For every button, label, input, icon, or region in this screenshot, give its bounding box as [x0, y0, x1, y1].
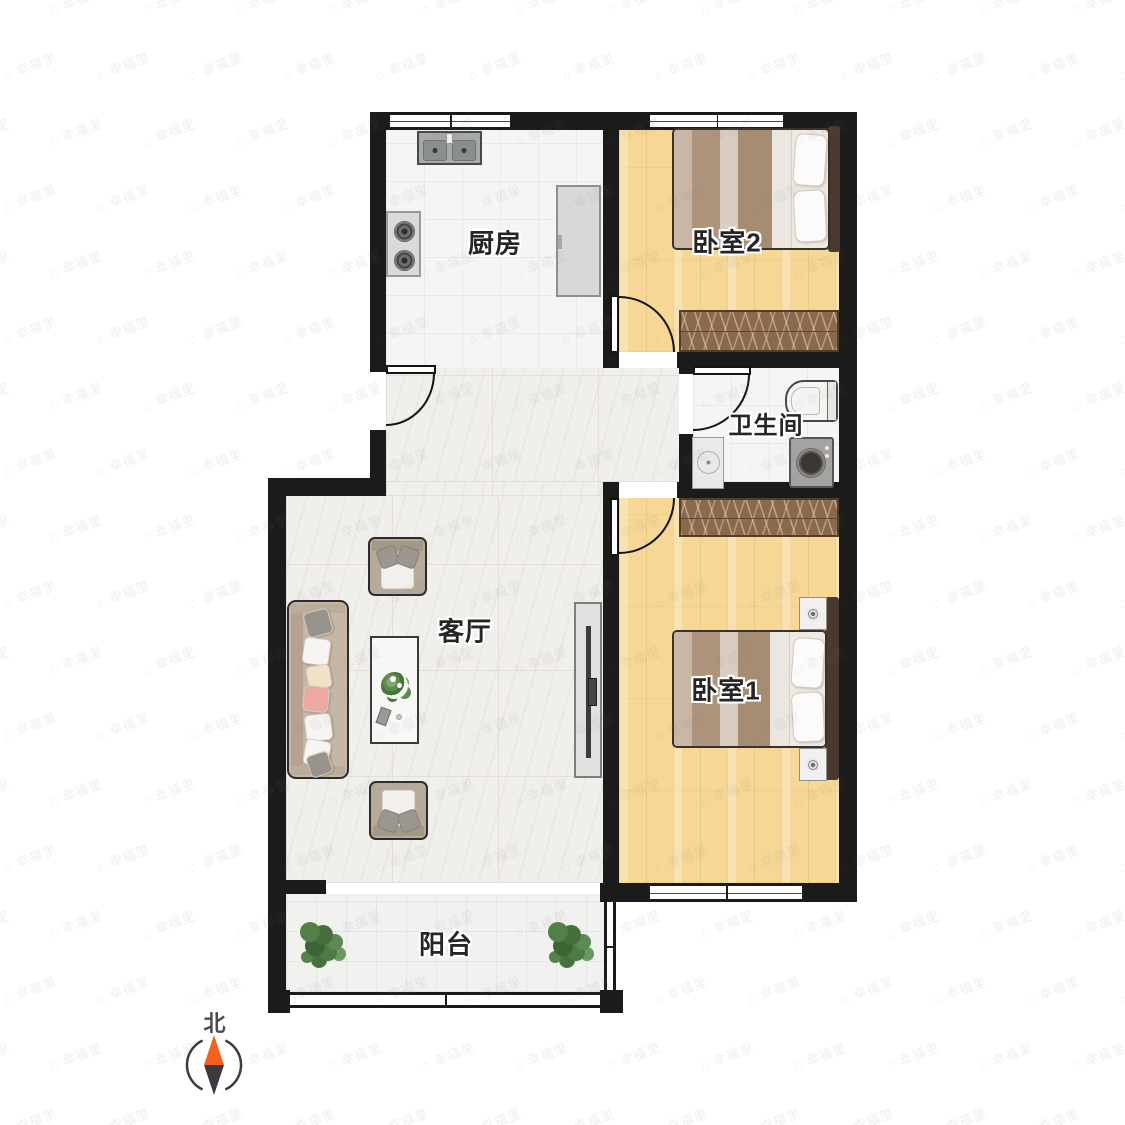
- flower-icon: [397, 683, 402, 688]
- entry-door-leaf: [386, 365, 436, 374]
- watermark-item: ⌂ 幸福里: [46, 0, 105, 18]
- watermark-item: ⌂ 幸福里: [883, 113, 942, 150]
- wall-segment: [603, 352, 619, 368]
- watermark-item: ⌂ 幸福里: [0, 1037, 12, 1074]
- watermark-item: ⌂ 幸福里: [930, 443, 989, 480]
- watermark-item: ⌂ 幸福里: [1023, 443, 1082, 480]
- watermark-item: ⌂ 幸福里: [697, 0, 756, 18]
- watermark-item: ⌂ 幸福里: [1069, 905, 1125, 942]
- watermark-item: ⌂ 幸福里: [1116, 179, 1125, 216]
- coffee-table: [370, 636, 419, 744]
- watermark-item: ⌂ 幸福里: [1023, 707, 1082, 744]
- wall-segment: [268, 496, 286, 1012]
- room-label-bedroom2: 卧室2: [692, 223, 761, 260]
- sofa-pillow: [301, 636, 331, 666]
- room-label-bedroom1: 卧室1: [691, 671, 760, 708]
- sink-basin: [452, 140, 476, 161]
- watermark-item: ⌂ 幸福里: [0, 707, 59, 744]
- compass-needle-north: [204, 1035, 224, 1065]
- watermark-item: ⌂ 幸福里: [930, 971, 989, 1008]
- watermark-item: ⌂ 幸福里: [976, 641, 1035, 678]
- watermark-item: ⌂ 幸福里: [1069, 113, 1125, 150]
- sink-basin: [423, 140, 447, 161]
- wall-segment: [839, 130, 857, 902]
- wall-segment: [510, 112, 650, 130]
- watermark-item: ⌂ 幸福里: [465, 47, 524, 84]
- watermark-item: ⌂ 幸福里: [976, 113, 1035, 150]
- wall-segment: [603, 482, 619, 498]
- watermark-item: ⌂ 幸福里: [325, 0, 384, 18]
- watermark-item: ⌂ 幸福里: [930, 1103, 989, 1125]
- watermark-item: ⌂ 幸福里: [930, 707, 989, 744]
- watermark-item: ⌂ 幸福里: [0, 1103, 59, 1125]
- room-label-balcony: 阳台: [419, 925, 473, 962]
- watermark-item: ⌂ 幸福里: [1116, 1103, 1125, 1125]
- watermark-item: ⌂ 幸福里: [744, 1103, 803, 1125]
- watermark-item: ⌂ 幸福里: [930, 839, 989, 876]
- watermark-item: ⌂ 幸福里: [465, 1103, 524, 1125]
- watermark-item: ⌂ 幸福里: [186, 971, 245, 1008]
- watermark-item: ⌂ 幸福里: [744, 971, 803, 1008]
- watermark-item: ⌂ 幸福里: [976, 377, 1035, 414]
- watermark-item: ⌂ 幸福里: [976, 773, 1035, 810]
- watermark-item: ⌂ 幸福里: [1069, 1037, 1125, 1074]
- faucet-icon: [446, 133, 453, 144]
- watermark-item: ⌂ 幸福里: [279, 179, 338, 216]
- watermark-item: ⌂ 幸福里: [139, 773, 198, 810]
- watermark-item: ⌂ 幸福里: [186, 47, 245, 84]
- watermark-item: ⌂ 幸福里: [418, 0, 477, 18]
- coaster: [396, 714, 402, 720]
- watermark-item: ⌂ 幸福里: [93, 1103, 152, 1125]
- watermark-item: ⌂ 幸福里: [0, 311, 59, 348]
- watermark-item: ⌂ 幸福里: [976, 905, 1035, 942]
- room-label-bathroom: 卫生间: [729, 406, 804, 441]
- tv-base: [588, 678, 597, 706]
- nightstand: [799, 597, 827, 630]
- watermark-item: ⌂ 幸福里: [697, 905, 756, 942]
- watermark-item: ⌂ 幸福里: [46, 245, 105, 282]
- watermark-item: ⌂ 幸福里: [1023, 1103, 1082, 1125]
- watermark-item: ⌂ 幸福里: [0, 245, 12, 282]
- watermark-item: ⌂ 幸福里: [558, 1103, 617, 1125]
- washer-button: [825, 446, 829, 450]
- wall-segment: [370, 430, 386, 478]
- watermark-item: ⌂ 幸福里: [0, 47, 59, 84]
- watermark-item: ⌂ 幸福里: [279, 1103, 338, 1125]
- watermark-item: ⌂ 幸福里: [139, 113, 198, 150]
- balcony-side-window: [604, 902, 616, 990]
- watermark-item: ⌂ 幸福里: [46, 509, 105, 546]
- watermark-item: ⌂ 幸福里: [139, 0, 198, 18]
- watermark-item: ⌂ 幸福里: [1116, 575, 1125, 612]
- watermark-item: ⌂ 幸福里: [232, 245, 291, 282]
- remote-control: [375, 707, 391, 727]
- watermark-item: ⌂ 幸福里: [279, 443, 338, 480]
- watermark-item: ⌂ 幸福里: [139, 245, 198, 282]
- watermark-item: ⌂ 幸福里: [1023, 179, 1082, 216]
- watermark-item: ⌂ 幸福里: [976, 509, 1035, 546]
- watermark-item: ⌂ 幸福里: [1069, 0, 1125, 18]
- wall-segment: [370, 112, 390, 130]
- watermark-item: ⌂ 幸福里: [883, 773, 942, 810]
- burner-icon: [394, 250, 415, 271]
- watermark-item: ⌂ 幸福里: [790, 905, 849, 942]
- wall-segment: [679, 368, 693, 374]
- watermark-item: ⌂ 幸福里: [186, 1103, 245, 1125]
- watermark-item: ⌂ 幸福里: [976, 245, 1035, 282]
- watermark-item: ⌂ 幸福里: [837, 1103, 896, 1125]
- wall-segment: [268, 990, 290, 1013]
- wardrobe: [679, 498, 839, 537]
- flower-icon: [390, 676, 396, 682]
- watermark-item: ⌂ 幸福里: [232, 377, 291, 414]
- watermark-item: ⌂ 幸福里: [93, 179, 152, 216]
- watermark-item: ⌂ 幸福里: [697, 1037, 756, 1074]
- watermark-item: ⌂ 幸福里: [883, 377, 942, 414]
- watermark-item: ⌂ 幸福里: [0, 179, 59, 216]
- watermark-item: ⌂ 幸福里: [186, 443, 245, 480]
- hallway-floor-strip: [386, 482, 603, 496]
- watermark-item: ⌂ 幸福里: [93, 839, 152, 876]
- watermark-item: ⌂ 幸福里: [372, 1103, 431, 1125]
- basin-icon: [697, 451, 720, 474]
- bathroom-door-leaf: [693, 366, 751, 375]
- watermark-item: ⌂ 幸福里: [279, 311, 338, 348]
- watermark-item: ⌂ 幸福里: [139, 377, 198, 414]
- watermark-item: ⌂ 幸福里: [325, 377, 384, 414]
- floor-plan: ⌂ 幸福里⌂ 幸福里⌂ 幸福里⌂ 幸福里⌂ 幸福里⌂ 幸福里⌂ 幸福里⌂ 幸福里…: [0, 0, 1125, 1125]
- compass-needle-south: [204, 1065, 224, 1095]
- watermark-item: ⌂ 幸福里: [837, 971, 896, 1008]
- washing-machine: [789, 437, 834, 488]
- watermark-item: ⌂ 幸福里: [930, 179, 989, 216]
- watermark-item: ⌂ 幸福里: [93, 311, 152, 348]
- watermark-item: ⌂ 幸福里: [976, 1037, 1035, 1074]
- tv-stand: [574, 602, 602, 778]
- watermark-item: ⌂ 幸福里: [883, 905, 942, 942]
- watermark-item: ⌂ 幸福里: [883, 1037, 942, 1074]
- sofa: [287, 600, 349, 779]
- watermark-item: ⌂ 幸福里: [372, 47, 431, 84]
- watermark-item: ⌂ 幸福里: [930, 47, 989, 84]
- washer-button: [825, 454, 829, 458]
- watermark-item: ⌂ 幸福里: [744, 47, 803, 84]
- watermark-item: ⌂ 幸福里: [883, 509, 942, 546]
- wardrobe: [679, 310, 839, 352]
- watermark-item: ⌂ 幸福里: [976, 0, 1035, 18]
- kitchen-window: [390, 112, 510, 130]
- watermark-item: ⌂ 幸福里: [511, 0, 570, 18]
- toilet-tank: [827, 382, 836, 420]
- watermark-item: ⌂ 幸福里: [0, 509, 12, 546]
- watermark-item: ⌂ 幸福里: [1069, 509, 1125, 546]
- watermark-item: ⌂ 幸福里: [1069, 377, 1125, 414]
- kitchen-sink: [417, 131, 482, 165]
- watermark-item: ⌂ 幸福里: [0, 0, 12, 18]
- watermark-item: ⌂ 幸福里: [139, 641, 198, 678]
- watermark-item: ⌂ 幸福里: [1023, 971, 1082, 1008]
- watermark-item: ⌂ 幸福里: [1069, 641, 1125, 678]
- bathroom-sink: [692, 437, 724, 489]
- watermark-item: ⌂ 幸福里: [1023, 311, 1082, 348]
- watermark-item: ⌂ 幸福里: [1069, 245, 1125, 282]
- wall-segment: [370, 130, 386, 372]
- watermark-item: ⌂ 幸福里: [93, 443, 152, 480]
- compass-icon: [184, 1034, 244, 1098]
- watermark-item: ⌂ 幸福里: [790, 1037, 849, 1074]
- watermark-item: ⌂ 幸福里: [883, 641, 942, 678]
- watermark-item: ⌂ 幸福里: [232, 113, 291, 150]
- watermark-item: ⌂ 幸福里: [651, 1103, 710, 1125]
- watermark-item: ⌂ 幸福里: [0, 839, 59, 876]
- fridge-handle: [558, 235, 562, 249]
- watermark-item: ⌂ 幸福里: [837, 47, 896, 84]
- watermark-item: ⌂ 幸福里: [651, 47, 710, 84]
- watermark-item: ⌂ 幸福里: [139, 905, 198, 942]
- bedroom1-door-leaf: [610, 498, 619, 556]
- watermark-item: ⌂ 幸福里: [0, 575, 59, 612]
- watermark-item: ⌂ 幸福里: [0, 773, 12, 810]
- watermark-item: ⌂ 幸福里: [46, 905, 105, 942]
- watermark-item: ⌂ 幸福里: [186, 311, 245, 348]
- watermark-item: ⌂ 幸福里: [1116, 443, 1125, 480]
- watermark-item: ⌂ 幸福里: [93, 707, 152, 744]
- wall-segment: [286, 880, 326, 894]
- wall-segment: [802, 883, 857, 902]
- watermark-item: ⌂ 幸福里: [93, 47, 152, 84]
- watermark-item: ⌂ 幸福里: [0, 641, 12, 678]
- watermark-item: ⌂ 幸福里: [651, 971, 710, 1008]
- watermark-item: ⌂ 幸福里: [418, 1037, 477, 1074]
- watermark-item: ⌂ 幸福里: [325, 1037, 384, 1074]
- watermark-item: ⌂ 幸福里: [0, 443, 59, 480]
- stove: [386, 211, 421, 277]
- fridge: [556, 185, 601, 297]
- watermark-item: ⌂ 幸福里: [93, 575, 152, 612]
- bedroom1-window: [650, 883, 802, 902]
- burner-icon: [394, 221, 415, 242]
- sofa-pillow: [302, 685, 331, 714]
- washer-drum: [796, 448, 826, 478]
- room-label-kitchen: 厨房: [468, 224, 522, 261]
- watermark-item: ⌂ 幸福里: [604, 1037, 663, 1074]
- watermark-item: ⌂ 幸福里: [139, 509, 198, 546]
- armchair: [368, 537, 427, 596]
- watermark-item: ⌂ 幸福里: [930, 575, 989, 612]
- watermark-item: ⌂ 幸福里: [232, 0, 291, 18]
- watermark-item: ⌂ 幸福里: [0, 971, 59, 1008]
- watermark-item: ⌂ 幸福里: [883, 245, 942, 282]
- watermark-item: ⌂ 幸福里: [46, 113, 105, 150]
- armchair: [369, 781, 428, 840]
- watermark-item: ⌂ 幸福里: [790, 0, 849, 18]
- bedroom2-door-leaf: [610, 295, 619, 353]
- watermark-item: ⌂ 幸福里: [186, 707, 245, 744]
- watermark-item: ⌂ 幸福里: [93, 971, 152, 1008]
- watermark-item: ⌂ 幸福里: [883, 0, 942, 18]
- watermark-item: ⌂ 幸福里: [1116, 47, 1125, 84]
- watermark-item: ⌂ 幸福里: [1116, 971, 1125, 1008]
- watermark-item: ⌂ 幸福里: [1023, 47, 1082, 84]
- watermark-item: ⌂ 幸福里: [46, 641, 105, 678]
- watermark-item: ⌂ 幸福里: [1069, 773, 1125, 810]
- room-label-living-room: 客厅: [438, 612, 492, 649]
- watermark-item: ⌂ 幸福里: [186, 575, 245, 612]
- watermark-item: ⌂ 幸福里: [604, 0, 663, 18]
- plant: [548, 922, 568, 942]
- nightstand: [799, 748, 827, 781]
- watermark-item: ⌂ 幸福里: [0, 905, 12, 942]
- watermark-item: ⌂ 幸福里: [1116, 839, 1125, 876]
- watermark-item: ⌂ 幸福里: [46, 1037, 105, 1074]
- bed-headboard: [825, 597, 839, 780]
- watermark-item: ⌂ 幸福里: [186, 839, 245, 876]
- watermark-item: ⌂ 幸福里: [0, 113, 12, 150]
- watermark-item: ⌂ 幸福里: [1116, 707, 1125, 744]
- watermark-item: ⌂ 幸福里: [930, 311, 989, 348]
- watermark-item: ⌂ 幸福里: [186, 179, 245, 216]
- watermark-item: ⌂ 幸福里: [1116, 311, 1125, 348]
- wall-segment: [600, 990, 623, 1013]
- watermark-item: ⌂ 幸福里: [558, 47, 617, 84]
- watermark-item: ⌂ 幸福里: [1023, 839, 1082, 876]
- balcony-window: [290, 992, 600, 1008]
- wall-segment: [268, 478, 386, 496]
- plant: [300, 922, 320, 942]
- wall-segment: [600, 883, 650, 902]
- watermark-item: ⌂ 幸福里: [46, 773, 105, 810]
- watermark-item: ⌂ 幸福里: [511, 1037, 570, 1074]
- watermark-item: ⌂ 幸福里: [1023, 575, 1082, 612]
- watermark-item: ⌂ 幸福里: [46, 377, 105, 414]
- watermark-item: ⌂ 幸福里: [279, 47, 338, 84]
- watermark-item: ⌂ 幸福里: [0, 377, 12, 414]
